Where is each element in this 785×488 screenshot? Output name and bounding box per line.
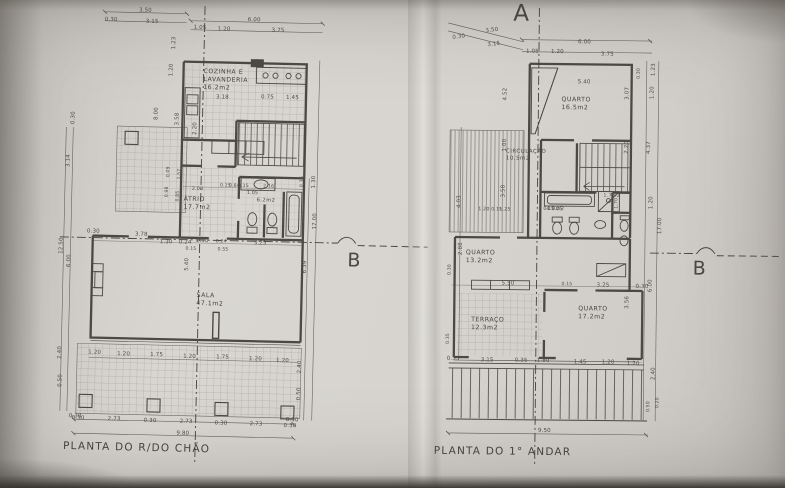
right-plan-drawing bbox=[444, 7, 785, 467]
fixtures bbox=[446, 67, 651, 421]
left-plan-drawing bbox=[55, 3, 433, 467]
floorplan-drawing bbox=[0, 0, 785, 488]
bidet-icon bbox=[570, 222, 579, 234]
floor-plan-photo: PLANTA DO R/DO CHÃO B COZINHA E LAVANDER… bbox=[0, 0, 785, 488]
toilet-icon bbox=[553, 222, 562, 234]
balcony-railing bbox=[448, 368, 645, 420]
wardrobe-icon bbox=[531, 68, 558, 134]
closet-icon bbox=[471, 280, 529, 290]
stairs bbox=[237, 123, 304, 166]
toilet-icon bbox=[620, 220, 628, 231]
sink-icon bbox=[595, 220, 606, 228]
bidet-icon bbox=[620, 236, 628, 246]
